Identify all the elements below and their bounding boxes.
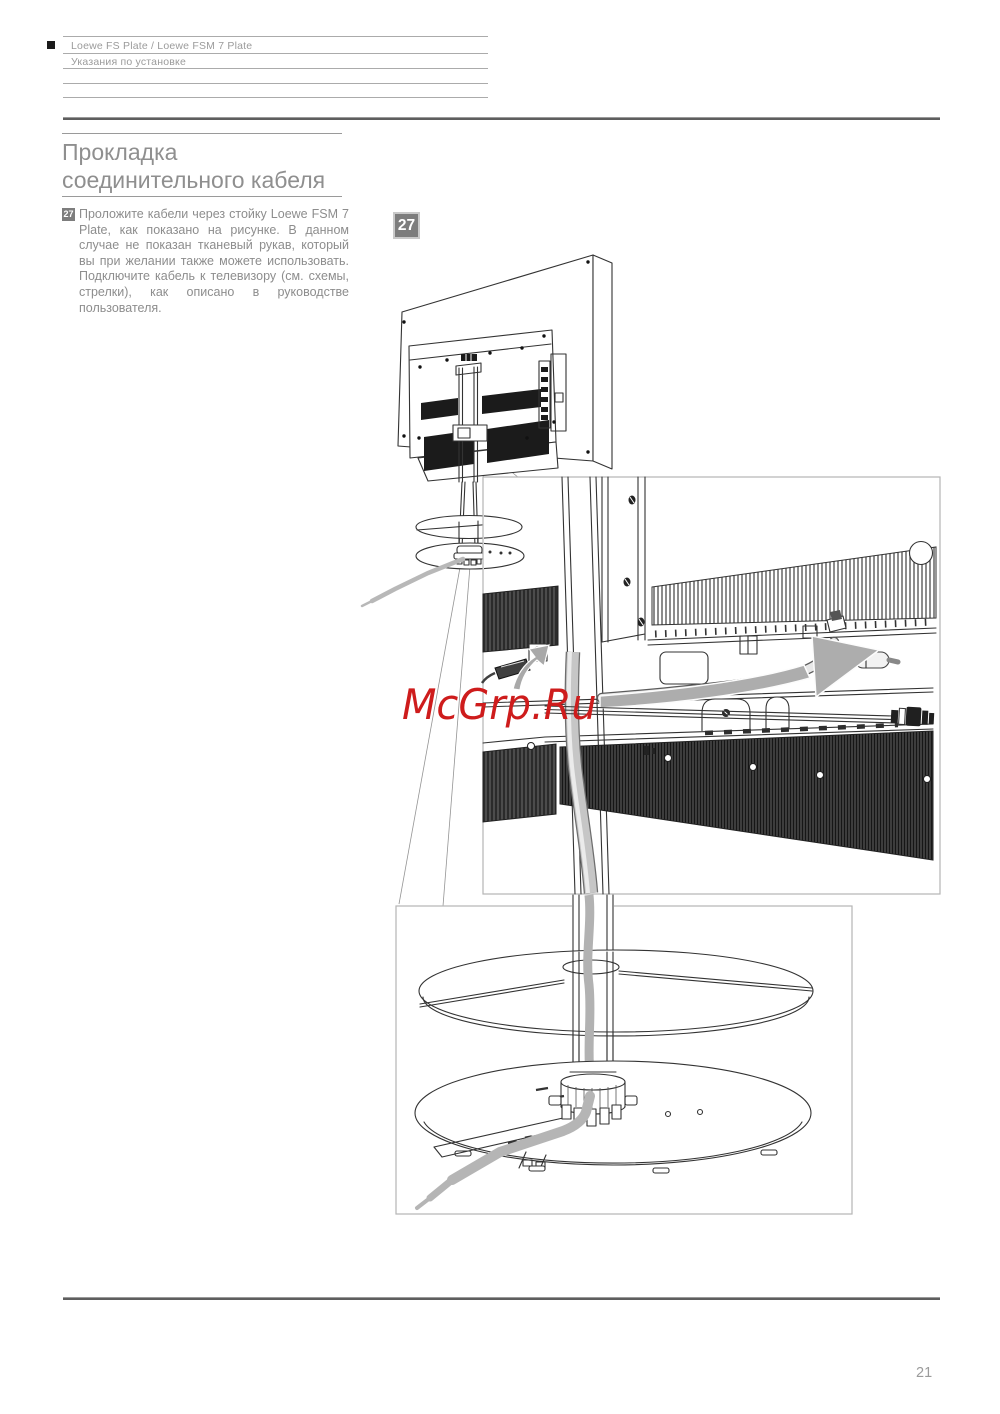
tv-rear-overview-drawing (398, 255, 612, 482)
manual-page: { "header": { "product_line": "Loewe FS … (0, 0, 1000, 1414)
speaker-band-left (483, 744, 556, 822)
detail-inset-base-plate (396, 895, 852, 1214)
cable-overview (372, 559, 463, 601)
left-grille-band (483, 586, 558, 652)
watermark-text: McGrp.Ru (402, 680, 597, 729)
